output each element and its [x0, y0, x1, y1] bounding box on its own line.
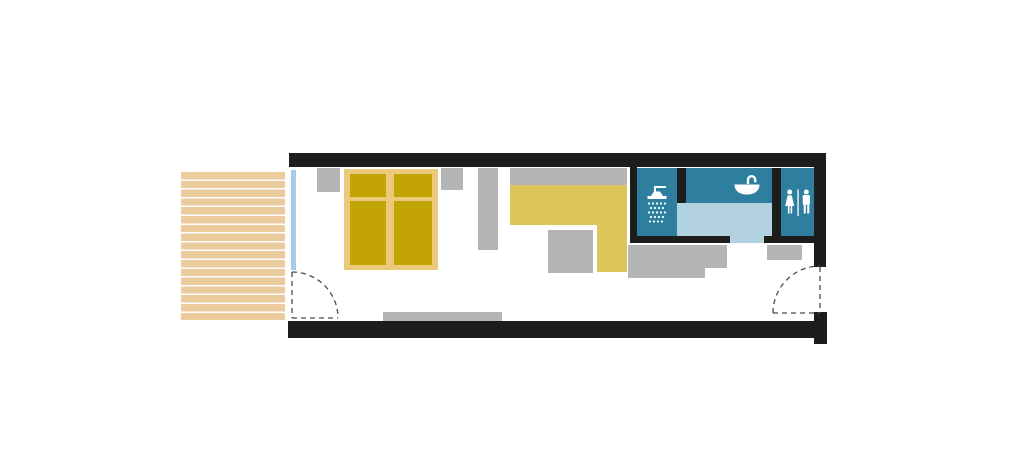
door-swing-right	[768, 262, 826, 317]
restroom-icon	[783, 188, 813, 218]
shelf-top	[510, 168, 627, 185]
mattress-right	[394, 174, 432, 265]
wardrobe-right	[441, 168, 463, 190]
wall-right-upper	[814, 153, 826, 267]
bench-bottom	[383, 312, 502, 321]
wall-top	[289, 153, 826, 167]
bathroom-divider-shower-sink	[677, 168, 686, 203]
closet-tall	[478, 168, 498, 250]
kitchen-counter-side	[597, 225, 627, 272]
shower-icon	[645, 185, 669, 227]
table-square	[548, 230, 593, 273]
door-swing-left	[288, 268, 344, 322]
cabinet-under-shower-wide	[628, 245, 727, 268]
washbasin-icon	[733, 175, 761, 196]
kitchen-counter-top	[510, 185, 627, 225]
deck-terrace	[181, 172, 285, 320]
wardrobe-left	[317, 168, 340, 192]
wall-bottom	[288, 321, 814, 338]
bathroom-wall-bottom-left	[630, 236, 730, 243]
pillow-divider-right	[394, 197, 432, 201]
floorplan-canvas	[0, 0, 1024, 468]
bathroom-wall-bottom-right	[764, 236, 814, 243]
bathroom-divider-sink-wc	[772, 168, 781, 236]
mattress-left	[350, 174, 386, 265]
window-strip	[291, 170, 296, 270]
bathroom-floor	[677, 203, 772, 236]
cabinet-under-shower-step	[628, 268, 705, 278]
pillow-divider-left	[350, 197, 386, 201]
bathroom-doorway	[730, 236, 764, 243]
cabinet-under-wc	[767, 245, 802, 260]
bathroom-wall-left	[630, 167, 637, 243]
